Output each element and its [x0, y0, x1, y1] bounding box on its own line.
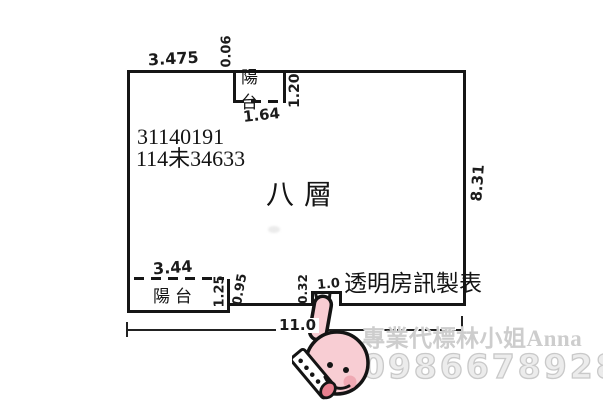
dim-top-wall-jog: 0.06	[221, 35, 234, 69]
dim-notch-width: 1.0	[316, 277, 340, 292]
dim-balcony-top-depth: 1.20	[288, 78, 302, 108]
hand-face-right-eye	[343, 367, 349, 373]
balcony-bottom-label: 陽台	[148, 282, 197, 307]
overall-dimension-tick-left	[126, 322, 128, 337]
balcony-top-box: 陽台	[233, 70, 286, 103]
balcony-bottom-dashed-edge	[134, 277, 224, 280]
floorplan-canvas: 陽台 陽台 3.475 0.06 1.64 1.20 8.31 3.44 1.2…	[0, 0, 603, 400]
scan-smudge	[268, 226, 280, 233]
dim-balcony-bottom-depth: 1.25	[214, 280, 227, 308]
dim-overall-width: 11.0	[276, 318, 319, 333]
registration-code: 114未34633	[136, 148, 245, 170]
hand-face-left-eye	[327, 362, 333, 368]
dim-balcony-top-width: 1.64	[242, 106, 280, 125]
dim-balcony-bottom-width: 3.44	[152, 259, 193, 278]
floor-label: 八層	[266, 182, 342, 210]
wall-left	[127, 70, 130, 313]
thumbs-up-hand-illustration	[292, 292, 372, 400]
dim-bottom-step: 0.95	[231, 275, 249, 307]
dim-right-wall: 8.31	[469, 167, 486, 202]
registration-number: 31140191	[137, 126, 224, 148]
balcony-top-dashed-edge	[234, 100, 285, 103]
dim-top-wall-left: 3.475	[148, 50, 199, 69]
watermark-phone-number: 0986678928	[362, 347, 603, 386]
